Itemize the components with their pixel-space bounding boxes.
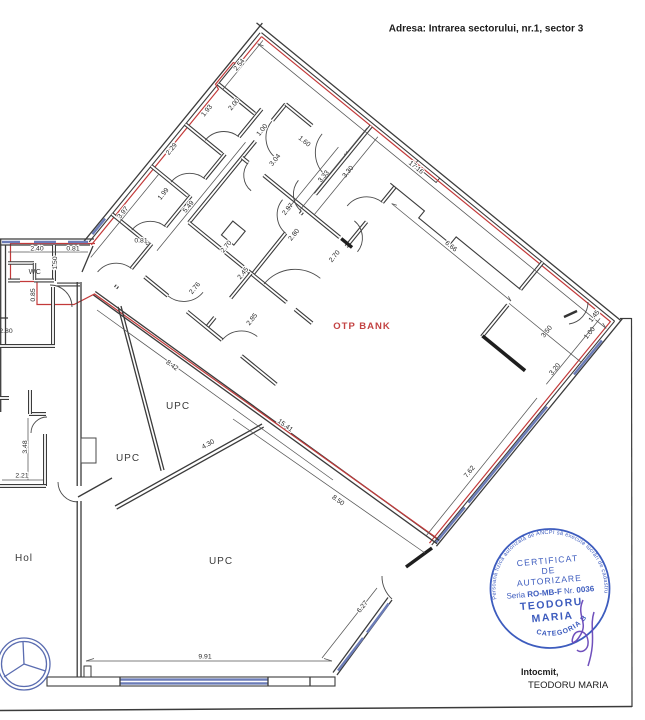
svg-text:TEODORU MARIA: TEODORU MARIA [528, 680, 609, 691]
svg-text:WC: WC [29, 269, 42, 276]
svg-text:Intocmit,: Intocmit, [521, 667, 559, 677]
svg-text:0.81: 0.81 [134, 238, 147, 245]
svg-text:Adresa: Intrarea sectorului, n: Adresa: Intrarea sectorului, nr.1, secto… [389, 24, 584, 35]
svg-text:UPC: UPC [116, 453, 140, 464]
svg-text:9.91: 9.91 [198, 654, 211, 661]
svg-text:UPC: UPC [166, 401, 190, 412]
svg-text:3.48: 3.48 [22, 440, 29, 453]
svg-text:0.81: 0.81 [66, 246, 79, 253]
svg-text:OTP BANK: OTP BANK [333, 321, 390, 332]
svg-text:0.85: 0.85 [30, 288, 37, 301]
svg-text:UPC: UPC [209, 556, 233, 567]
svg-text:Hol: Hol [15, 553, 33, 564]
svg-text:2.21: 2.21 [15, 473, 28, 480]
svg-text:2.80: 2.80 [0, 328, 13, 335]
svg-text:2.40: 2.40 [30, 246, 43, 253]
svg-text:1.50: 1.50 [52, 256, 59, 269]
